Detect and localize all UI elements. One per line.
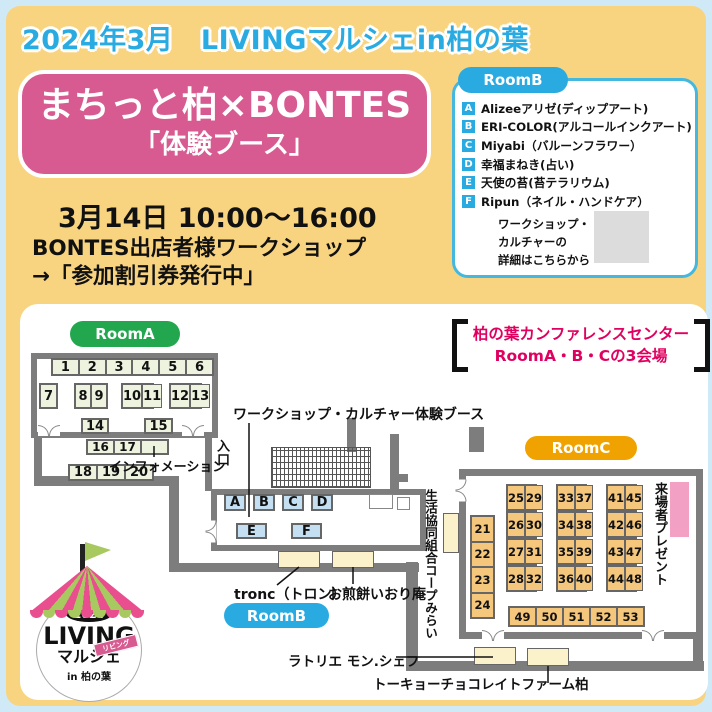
map-booth: 37 xyxy=(575,485,593,510)
circus-tent-icon xyxy=(30,566,144,612)
map-booth: 30 xyxy=(525,512,543,537)
main-title-box: まちっと柏×BONTES 「体験ブース」 xyxy=(18,70,431,178)
information-label: インフォメーション xyxy=(109,456,225,475)
map-booth: 53 xyxy=(617,607,644,626)
workshop-note-line2: →「参加割引券発行中」 xyxy=(32,263,366,291)
booth-strip: 2832 xyxy=(506,565,537,592)
map-booth: 12 xyxy=(170,384,190,408)
map-booth: 43 xyxy=(607,539,625,564)
wall xyxy=(34,434,42,482)
event-date: 3月14日 10:00～16:00 xyxy=(58,196,377,235)
map-booth: 40 xyxy=(575,566,593,591)
exhibitor-row: FRipun（ネイル・ハンドケア） xyxy=(462,192,696,211)
exhibitor-name: 天使の苔(苔テラリウム) xyxy=(481,174,610,191)
booth-letter-badge: C xyxy=(462,139,475,152)
map-booth: D xyxy=(312,495,332,510)
booth-strip: 21222324 xyxy=(470,515,495,619)
booth-strip: 14 xyxy=(81,418,109,434)
booth-strip: 4448 xyxy=(606,565,637,592)
booth-strip: 4950515253 xyxy=(508,606,645,627)
map-booth: 29 xyxy=(525,485,543,510)
map-booth: 23 xyxy=(471,567,494,593)
map-booth: 24 xyxy=(471,593,494,619)
flag-icon xyxy=(85,542,111,561)
map-booth: 45 xyxy=(625,485,643,510)
living-marche-logo: 2024 LIVING マルシェ in 柏の葉 リビング xyxy=(28,542,150,704)
booth-letter-badge: F xyxy=(462,195,475,208)
booth-strip: 2529 xyxy=(506,484,537,511)
booth-strip: 1213 xyxy=(169,383,202,409)
map-booth: 48 xyxy=(625,566,643,591)
event-banner-title: 2024年3月 LIVINGマルシェin柏の葉 xyxy=(22,18,529,57)
workshop-note: BONTES出店者様ワークショップ →「参加割引券発行中」 xyxy=(32,235,366,290)
map-booth: 47 xyxy=(625,539,643,564)
map-booth: E xyxy=(237,524,266,538)
booth-strip: 89 xyxy=(74,383,108,409)
door-icon xyxy=(38,425,60,436)
map-booth: 14 xyxy=(82,419,108,433)
booth-strip: 123456 xyxy=(51,358,214,376)
booth-strip: C xyxy=(282,494,304,511)
wall-stub xyxy=(390,474,408,482)
booth-strip: 4145 xyxy=(606,484,637,511)
booth-strip: 2731 xyxy=(506,538,537,565)
exhibitor-name: 幸福まねき(占い) xyxy=(481,156,574,173)
workshop-area-label: ワークショップ・カルチャー体験ブース xyxy=(233,404,484,424)
booth-strip: 1617 xyxy=(86,439,169,455)
map-booth: 52 xyxy=(590,607,617,626)
map-booth: 38 xyxy=(575,512,593,537)
main-title: まちっと柏×BONTES xyxy=(38,87,411,125)
exhibitor-row: E天使の苔(苔テラリウム) xyxy=(462,173,696,192)
map-booth: 11 xyxy=(142,384,162,408)
map-booth: 17 xyxy=(114,440,141,454)
booth-strip: 2630 xyxy=(506,511,537,538)
map-booth: 1 xyxy=(52,359,79,375)
booth-letter-badge: B xyxy=(462,120,475,133)
map-booth: 15 xyxy=(145,419,172,433)
booth-latelier xyxy=(474,647,516,665)
roomc-pill: RoomC xyxy=(525,436,637,460)
map-booth: 50 xyxy=(536,607,563,626)
booth-chocolate xyxy=(527,648,569,666)
booth-strip: F xyxy=(291,523,322,539)
map-booth: 28 xyxy=(507,566,525,591)
main-subtitle: 「体験ブース」 xyxy=(134,124,315,161)
exhibitor-row: CMiyabi（バルーンフラワー） xyxy=(462,136,696,155)
exhibitor-name: Ripun（ネイル・ハンドケア） xyxy=(481,193,649,210)
exhibitor-row: AAlizeeアリゼ(ディップアート) xyxy=(462,99,696,118)
map-booth: 42 xyxy=(607,512,625,537)
map-booth: 44 xyxy=(607,566,625,591)
exhibitor-row: BERI-COLOR(アルコールインクアート) xyxy=(462,118,696,137)
map-booth: 25 xyxy=(507,485,525,510)
venue-line2: RoomA・B・Cの3会場 xyxy=(468,346,694,368)
booth-strip: 3640 xyxy=(556,565,587,592)
map-booth: F xyxy=(292,524,321,538)
qr-note-line1: ワークショップ・ xyxy=(498,216,590,234)
workshop-note-line1: BONTES出店者様ワークショップ xyxy=(32,235,366,263)
booth-letter-badge: A xyxy=(462,102,475,115)
map-booth: 7 xyxy=(40,384,57,408)
booth-strip: E xyxy=(236,523,267,539)
qr-note: ワークショップ・ カルチャーの 詳細はこちらから xyxy=(498,216,590,269)
bracket-right xyxy=(694,319,710,372)
booth-senbei xyxy=(332,551,374,568)
booth-strip: B xyxy=(253,494,275,511)
wall xyxy=(693,636,703,666)
qr-code-placeholder xyxy=(594,211,649,263)
map-booth: 32 xyxy=(525,566,543,591)
senbei-label: お煎餅いおり庵 xyxy=(328,584,426,604)
map-booth: 49 xyxy=(509,607,536,626)
present-label: 来場者プレゼント xyxy=(650,482,669,586)
visitor-present-booth xyxy=(670,482,689,537)
map-booth: 16 xyxy=(87,440,114,454)
booth-strip: 15 xyxy=(144,418,173,434)
map-booth: 21 xyxy=(471,516,494,542)
roomb-panel-pill: RoomB xyxy=(458,67,568,93)
booth-strip: A xyxy=(224,494,246,511)
booth-strip: D xyxy=(311,494,333,511)
qr-note-line3: 詳細はこちらから xyxy=(498,252,590,270)
wall-pillar xyxy=(469,427,484,452)
booth-coop xyxy=(443,513,459,553)
map-booth: 41 xyxy=(607,485,625,510)
map-booth: 8 xyxy=(75,384,91,408)
door-icon xyxy=(642,630,664,641)
venue-note-text: 柏の葉カンファレンスセンター RoomA・B・Cの3会場 xyxy=(468,319,694,372)
map-booth: C xyxy=(283,495,303,510)
exhibitor-row: D幸福まねき(占い) xyxy=(462,155,696,174)
map-booth: 34 xyxy=(557,512,575,537)
wall-stub xyxy=(390,434,399,492)
booth-strip: 4347 xyxy=(606,538,637,565)
map-booth: 18 xyxy=(69,465,97,480)
door-icon xyxy=(206,521,217,543)
booth-tronc xyxy=(278,551,320,568)
map-booth: 13 xyxy=(190,384,210,408)
map-booth: 26 xyxy=(507,512,525,537)
venue-note: 柏の葉カンファレンスセンター RoomA・B・Cの3会場 xyxy=(452,319,710,372)
map-booth: 6 xyxy=(186,359,213,375)
map-booth: 27 xyxy=(507,539,525,564)
exhibitor-name: Miyabi（バルーンフラワー） xyxy=(481,137,642,154)
map-booth: 3 xyxy=(106,359,133,375)
map-booth: 4 xyxy=(132,359,159,375)
map-booth: A xyxy=(225,495,245,510)
rooma-pill: RoomA xyxy=(70,321,180,347)
map-booth: 5 xyxy=(159,359,186,375)
map-booth: 46 xyxy=(625,512,643,537)
booth-letter-badge: D xyxy=(462,158,475,171)
coop-label: 生活協同組合コープみらい xyxy=(421,489,440,639)
map-booth: B xyxy=(254,495,274,510)
tent-scallops xyxy=(30,610,144,618)
bracket-left xyxy=(452,319,468,372)
venue-line1: 柏の葉カンファレンスセンター xyxy=(468,324,694,346)
booth-strip: 3539 xyxy=(556,538,587,565)
flyer-frame: 2024年3月 LIVINGマルシェin柏の葉 まちっと柏×BONTES 「体験… xyxy=(0,0,712,712)
booth-letter-badge: E xyxy=(462,176,475,189)
map-booth: 39 xyxy=(575,539,593,564)
map-booth: 51 xyxy=(563,607,590,626)
map-booth: 10 xyxy=(122,384,142,408)
qr-note-line2: カルチャーの xyxy=(498,234,590,252)
chocolate-label: トーキョーチョコレイトファーム柏 xyxy=(373,673,589,693)
door-icon xyxy=(482,630,504,641)
map-booth: 22 xyxy=(471,542,494,568)
door-icon xyxy=(182,425,204,436)
door-icon xyxy=(456,480,467,502)
map-booth: 2 xyxy=(79,359,106,375)
booth-strip: 3337 xyxy=(556,484,587,511)
exhibitor-name: Alizeeアリゼ(ディップアート) xyxy=(481,100,648,117)
map-booth: 36 xyxy=(557,566,575,591)
exhibitor-name: ERI-COLOR(アルコールインクアート) xyxy=(481,118,692,135)
stage-seating-block xyxy=(271,447,371,488)
flyer-page: 2024年3月 LIVINGマルシェin柏の葉 まちっと柏×BONTES 「体験… xyxy=(6,6,706,706)
map-booth: 31 xyxy=(525,539,543,564)
roomb-exhibitor-list: AAlizeeアリゼ(ディップアート)BERI-COLOR(アルコールインクアー… xyxy=(462,99,696,211)
map-booth: 33 xyxy=(557,485,575,510)
map-booth: 9 xyxy=(91,384,107,408)
booth-strip: 4246 xyxy=(606,511,637,538)
booth-strip: 1011 xyxy=(121,383,154,409)
furniture-block xyxy=(397,497,410,510)
latelier-label: ラトリエ モン.シェフ xyxy=(288,650,419,670)
map-booth xyxy=(141,440,168,454)
wall xyxy=(169,476,179,572)
roomb-map-pill: RoomB xyxy=(224,603,329,628)
logo-location: in 柏の葉 xyxy=(67,668,111,683)
map-booth: 35 xyxy=(557,539,575,564)
booth-strip: 7 xyxy=(39,383,58,409)
booth-strip: 3438 xyxy=(556,511,587,538)
furniture-block xyxy=(369,494,393,509)
